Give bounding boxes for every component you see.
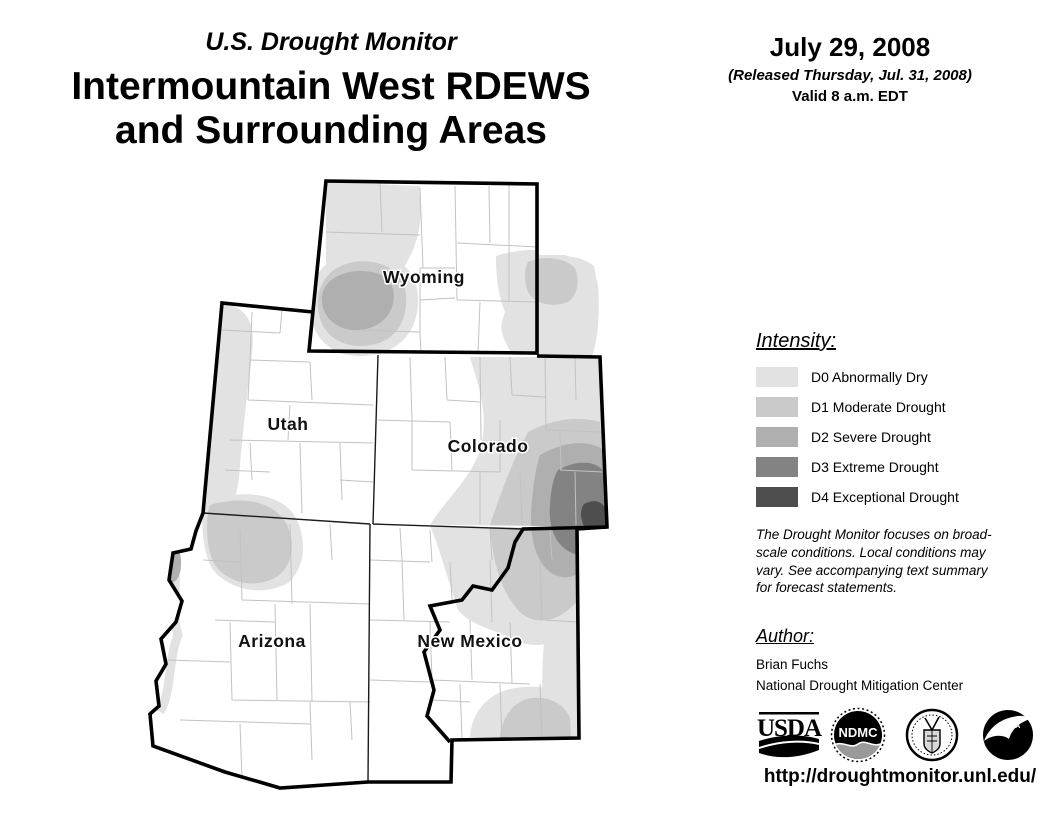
- author-org: National Drought Mitigation Center: [756, 678, 1036, 693]
- unl-seal: [907, 710, 957, 760]
- noaa-logo: NOAA: [983, 710, 1033, 760]
- noaa-text: NOAA: [1000, 723, 1021, 730]
- kicker-title: U.S. Drought Monitor: [31, 28, 631, 57]
- release-date: (Released Thursday, Jul. 31, 2008): [700, 67, 1000, 84]
- ndmc-text: NDMC: [839, 725, 879, 740]
- usda-logo: USDA: [757, 712, 822, 757]
- d0-label: D0 Abnormally Dry: [811, 369, 928, 385]
- state-label-new-mexico: New Mexico: [417, 631, 522, 651]
- d0-area-west-utah: [203, 303, 253, 514]
- page-title-line2: and Surrounding Areas: [31, 109, 631, 153]
- legend-row-d0: D0 Abnormally Dry: [756, 367, 1046, 387]
- d4-label: D4 Exceptional Drought: [811, 489, 959, 505]
- legend-row-d1: D1 Moderate Drought: [756, 397, 1046, 417]
- state-label-colorado: Colorado: [448, 436, 529, 456]
- author-title: Author:: [756, 626, 1036, 647]
- droughtmonitor-url: http://droughtmonitor.unl.edu/: [750, 766, 1050, 788]
- legend-row-d2: D2 Severe Drought: [756, 427, 1046, 447]
- drought-shading-layer: [160, 182, 607, 738]
- d3-swatch: [756, 457, 798, 477]
- d2-swatch: [756, 427, 798, 447]
- map-date: July 29, 2008: [700, 32, 1000, 63]
- title-block: U.S. Drought Monitor Intermountain West …: [31, 28, 631, 152]
- d1-swatch: [756, 397, 798, 417]
- ndmc-logo: NDMC: [832, 709, 885, 762]
- d3-label: D3 Extreme Drought: [811, 459, 939, 475]
- page-title: Intermountain West RDEWS and Surrounding…: [31, 65, 631, 152]
- author-name: Brian Fuchs: [756, 657, 1036, 672]
- disclaimer-text: The Drought Monitor focuses on broad-sca…: [756, 526, 998, 597]
- d4-swatch: [756, 487, 798, 507]
- state-label-wyoming: Wyoming: [383, 267, 465, 287]
- date-block: July 29, 2008 (Released Thursday, Jul. 3…: [700, 32, 1000, 105]
- d0-swatch: [756, 367, 798, 387]
- logo-strip: USDA NDMC NOAA: [752, 706, 1042, 766]
- d2-label: D2 Severe Drought: [811, 429, 931, 445]
- legend-row-d3: D3 Extreme Drought: [756, 457, 1046, 477]
- author-block: Author: Brian Fuchs National Drought Mit…: [756, 626, 1036, 699]
- state-label-arizona: Arizona: [238, 631, 306, 651]
- drought-map: Wyoming Utah Colorado Arizona New Mexico: [140, 170, 620, 815]
- page-title-line1: Intermountain West RDEWS: [31, 65, 631, 109]
- legend-row-d4: D4 Exceptional Drought: [756, 487, 1046, 507]
- d1-label: D1 Moderate Drought: [811, 399, 946, 415]
- legend-title: Intensity:: [756, 330, 1046, 353]
- legend: Intensity: D0 Abnormally Dry D1 Moderate…: [756, 330, 1046, 517]
- state-label-utah: Utah: [268, 414, 309, 434]
- d1-area-se-wyoming: [525, 258, 578, 305]
- valid-time: Valid 8 a.m. EDT: [700, 88, 1000, 105]
